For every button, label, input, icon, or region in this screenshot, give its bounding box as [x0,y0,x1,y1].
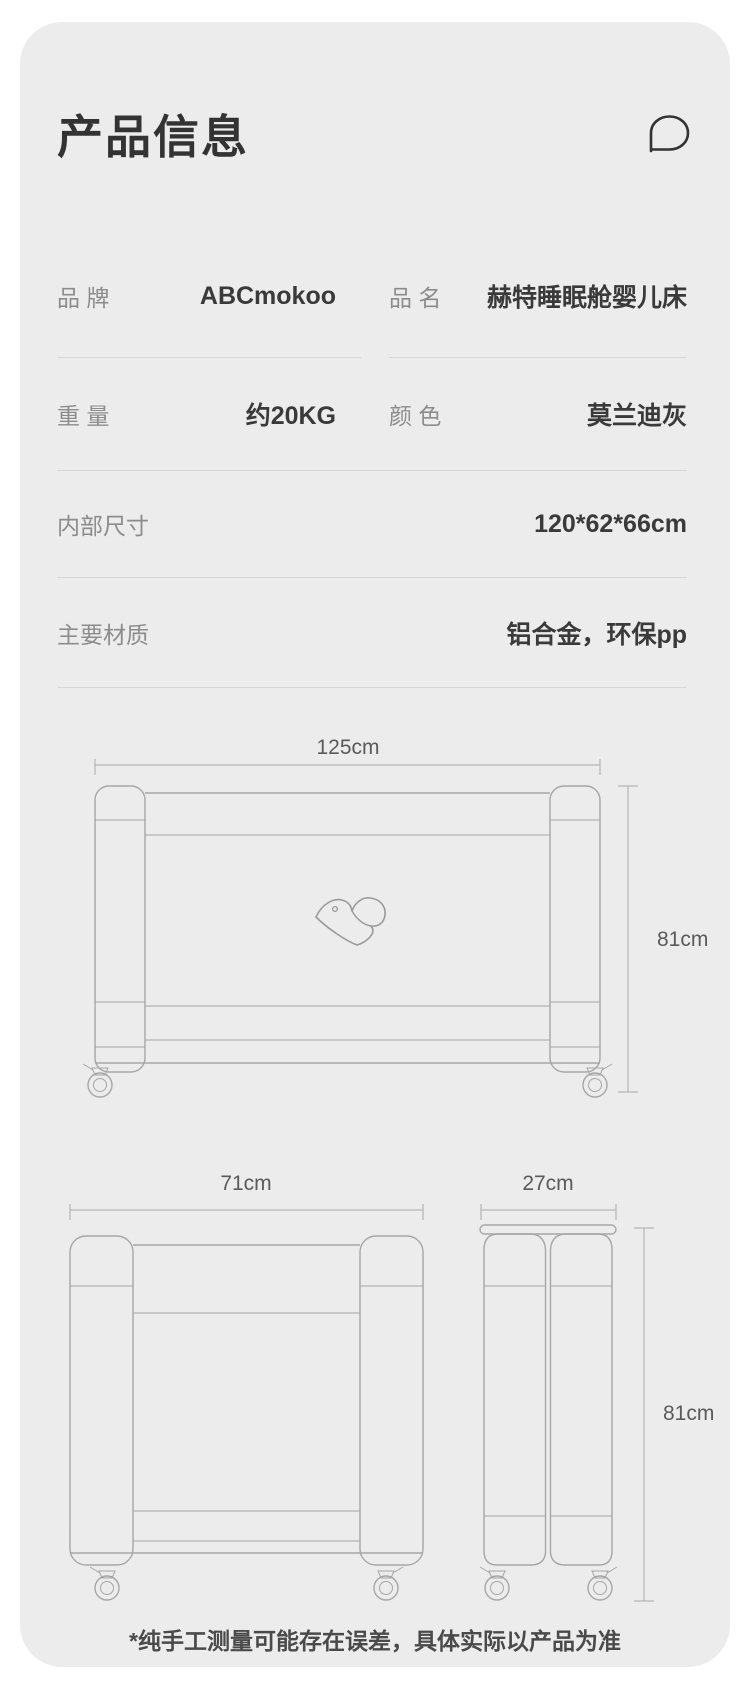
front-left-post [95,786,145,1072]
folded-top-bar [480,1225,616,1234]
end-width-dim-line [70,1204,423,1220]
folded-joints [484,1286,612,1516]
weight-label: 重 量 [57,397,109,431]
bird-logo-icon [316,898,385,945]
inner-size-value: 120*62*66cm [149,510,687,539]
folded-height-dim-line [634,1228,654,1601]
color-value: 莫兰迪灰 [441,396,687,432]
end-width-label: 71cm [186,1172,306,1196]
spec-table: 品 牌 ABCmokoo 品 名 赫特睡眠舱婴儿床 重 量 约20KG 颜 色 … [57,235,687,688]
spec-cell-weight: 重 量 约20KG [57,358,361,470]
material-label: 主要材质 [57,616,149,650]
caster-wheel [588,1567,617,1600]
folded-left-panel [484,1234,546,1565]
front-view-drawing [90,758,710,1112]
header: 产品信息 [57,102,693,166]
folded-view-drawing [478,1205,663,1610]
brand-label: 品 牌 [57,279,109,313]
caster-wheel [583,1064,612,1097]
caster-wheel [480,1567,509,1600]
front-right-post [550,786,600,1072]
spec-cell-product-name: 品 名 赫特睡眠舱婴儿床 [389,235,687,358]
folded-height-label: 81cm [663,1402,730,1426]
end-right-post [360,1236,423,1565]
product-info-card: 产品信息 品 牌 ABCmokoo 品 名 赫特睡眠舱婴儿床 重 量 约20KG [20,22,730,1667]
end-left-post [70,1236,133,1565]
page-title: 产品信息 [57,101,249,167]
inner-size-label: 内部尺寸 [57,507,149,541]
spec-cell-color: 颜 色 莫兰迪灰 [389,358,687,470]
product-name-label: 品 名 [389,279,441,313]
folded-width-label: 27cm [488,1172,608,1196]
weight-value: 约20KG [109,396,361,432]
brand-value: ABCmokoo [109,282,361,311]
end-rails [70,1245,423,1553]
chat-bubble-icon [646,113,693,156]
spec-row-brand-name: 品 牌 ABCmokoo 品 名 赫特睡眠舱婴儿床 [57,235,687,358]
front-height-dim-line [618,786,638,1092]
end-view-drawing [65,1205,430,1610]
folded-right-panel [551,1234,613,1565]
folded-width-dim-line [481,1204,616,1220]
spec-cell-brand: 品 牌 ABCmokoo [57,235,361,358]
front-width-dim-line [95,759,600,775]
color-label: 颜 色 [389,397,441,431]
front-width-label: 125cm [288,736,408,760]
front-rails [95,793,600,1063]
spec-row-inner-size: 内部尺寸 120*62*66cm [57,471,687,578]
spec-row-material: 主要材质 铝合金，环保pp [57,578,687,688]
measurement-disclaimer: *纯手工测量可能存在误差，具体实际以产品为准 [20,1622,730,1656]
material-value: 铝合金，环保pp [149,615,687,651]
caster-wheel [83,1064,112,1097]
caster-wheel [374,1567,403,1600]
product-name-value: 赫特睡眠舱婴儿床 [441,278,687,314]
spec-row-weight-color: 重 量 约20KG 颜 色 莫兰迪灰 [57,358,687,471]
caster-wheel [90,1567,119,1600]
